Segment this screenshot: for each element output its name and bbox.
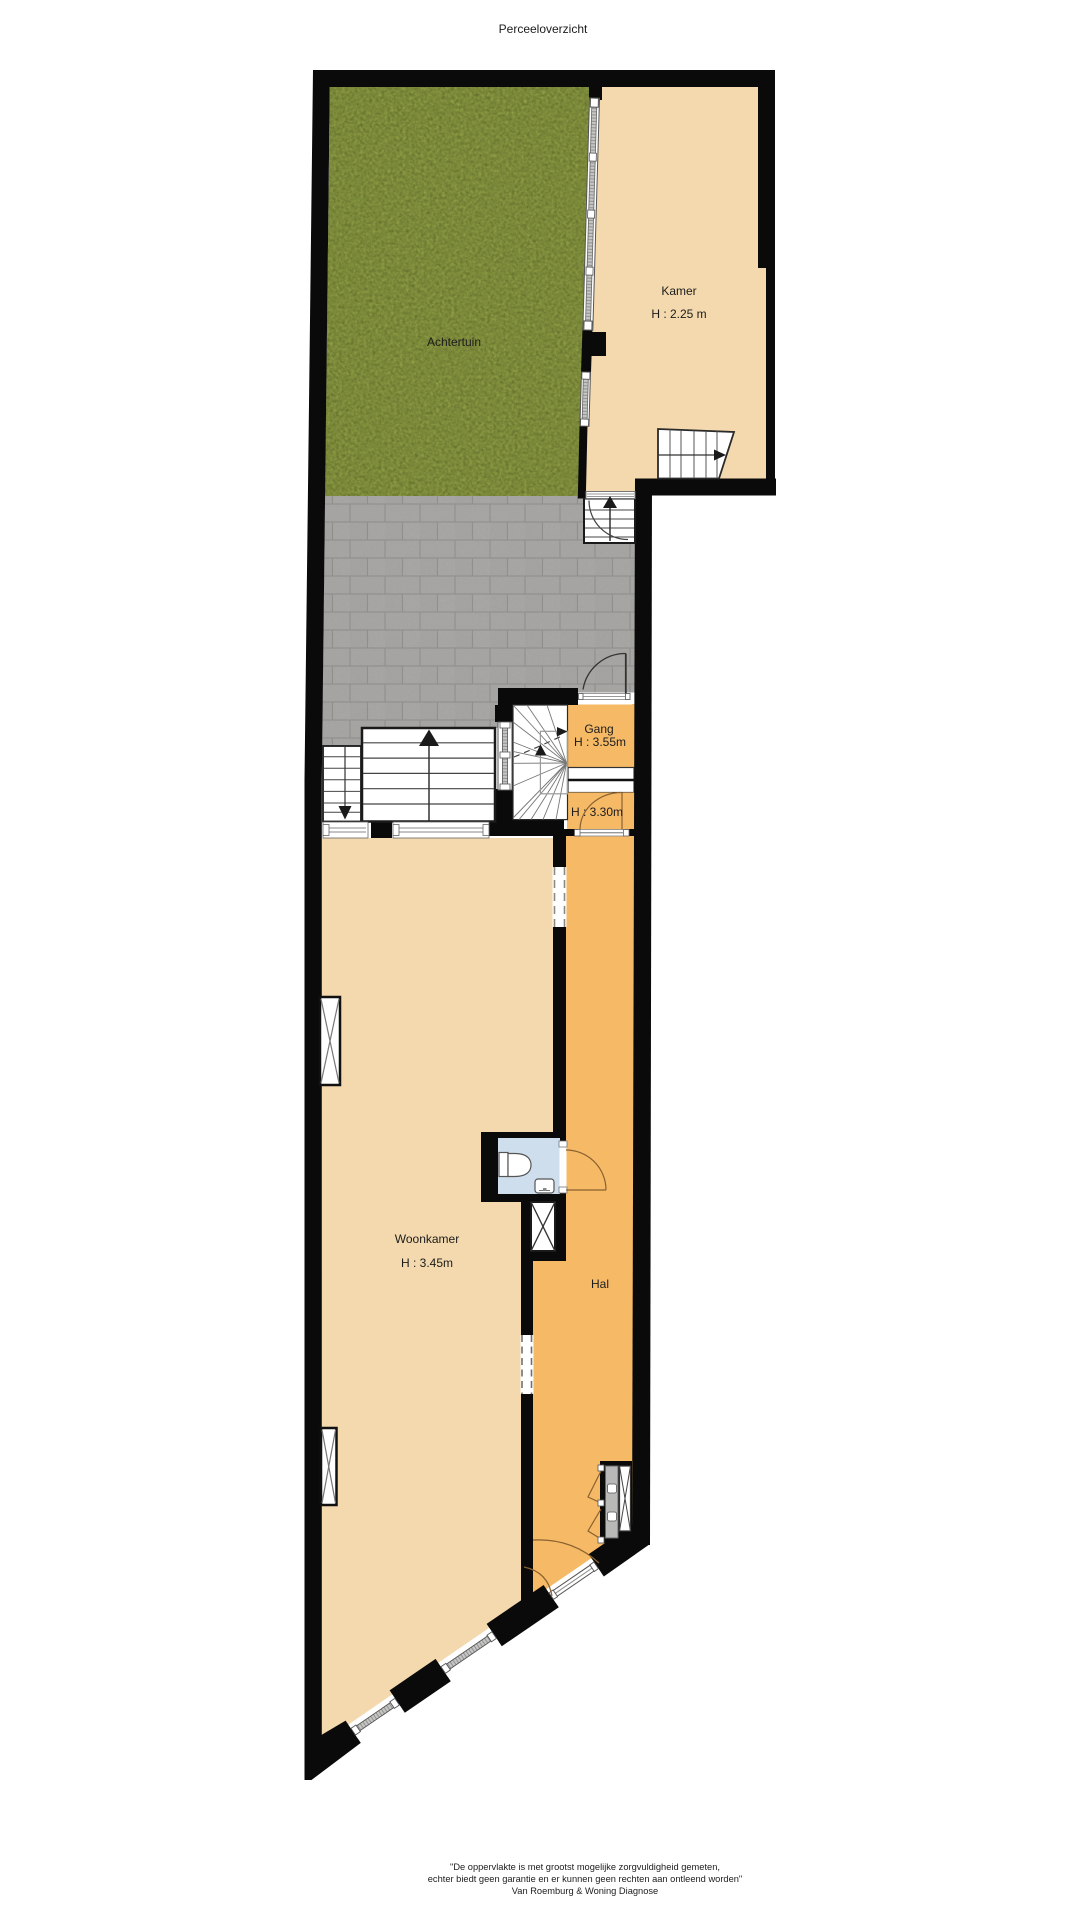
svg-text:Hal: Hal bbox=[591, 1277, 609, 1291]
svg-text:Perceeloverzicht: Perceeloverzicht bbox=[499, 22, 588, 36]
svg-text:"De oppervlakte is met grootst: "De oppervlakte is met grootst mogelijke… bbox=[450, 1862, 720, 1872]
svg-text:H : 2.25 m: H : 2.25 m bbox=[651, 307, 706, 321]
svg-text:Gang: Gang bbox=[584, 722, 613, 736]
svg-text:Achtertuin: Achtertuin bbox=[427, 335, 481, 349]
svg-text:echter biedt geen garantie en: echter biedt geen garantie en er kunnen … bbox=[428, 1874, 742, 1884]
svg-text:Van Roemburg & Woning Diagnose: Van Roemburg & Woning Diagnose bbox=[512, 1886, 658, 1896]
svg-text:H : 3.30m: H : 3.30m bbox=[571, 805, 623, 819]
svg-text:H : 3.45m: H : 3.45m bbox=[401, 1256, 453, 1270]
svg-text:Kamer: Kamer bbox=[661, 284, 696, 298]
svg-text:H : 3.55m: H : 3.55m bbox=[574, 735, 626, 749]
svg-text:Woonkamer: Woonkamer bbox=[395, 1232, 459, 1246]
